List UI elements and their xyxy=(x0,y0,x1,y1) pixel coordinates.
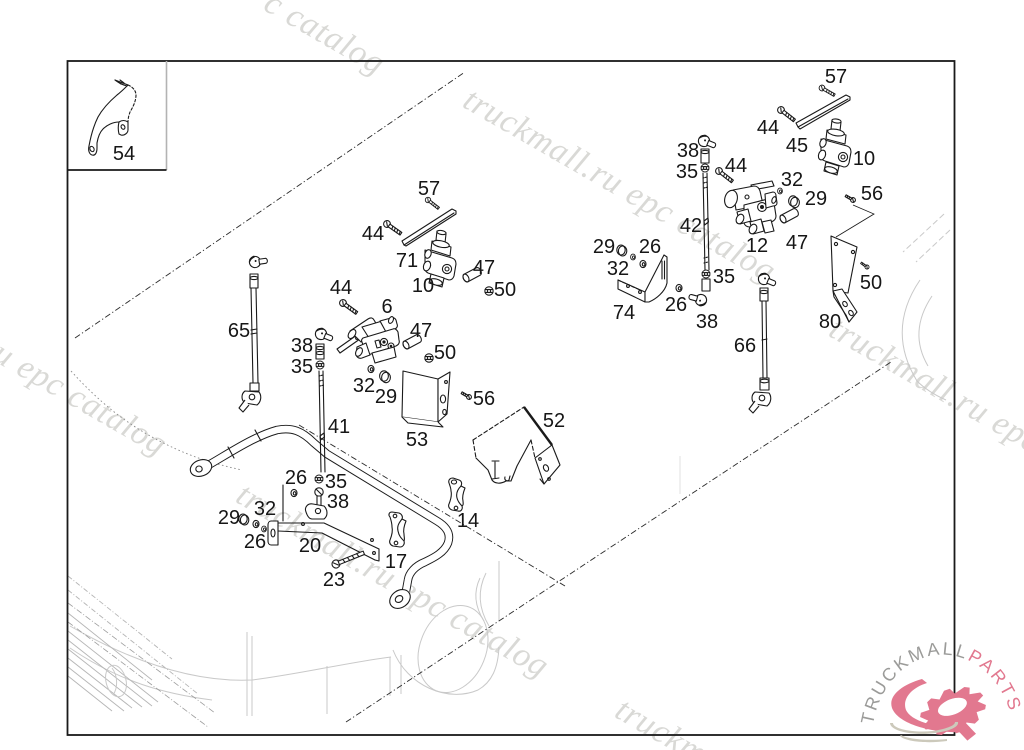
svg-text:26: 26 xyxy=(285,467,307,489)
svg-text:50: 50 xyxy=(494,279,516,301)
svg-text:10: 10 xyxy=(412,275,434,297)
svg-text:14: 14 xyxy=(457,510,479,532)
svg-text:32: 32 xyxy=(781,169,803,191)
svg-text:38: 38 xyxy=(677,140,699,162)
svg-text:74: 74 xyxy=(613,302,635,324)
svg-text:50: 50 xyxy=(860,272,882,294)
svg-text:26: 26 xyxy=(244,531,266,553)
svg-text:56: 56 xyxy=(861,183,883,205)
svg-text:65: 65 xyxy=(228,320,250,342)
svg-text:29: 29 xyxy=(593,236,615,258)
svg-text:57: 57 xyxy=(418,178,440,200)
svg-text:66: 66 xyxy=(734,335,756,357)
svg-text:50: 50 xyxy=(434,342,456,364)
svg-text:44: 44 xyxy=(757,117,779,139)
svg-text:42: 42 xyxy=(680,215,702,237)
svg-text:52: 52 xyxy=(543,410,565,432)
svg-text:35: 35 xyxy=(676,161,698,183)
svg-text:29: 29 xyxy=(218,507,240,529)
svg-text:53: 53 xyxy=(406,429,428,451)
svg-text:38: 38 xyxy=(696,311,718,333)
svg-text:38: 38 xyxy=(291,335,313,357)
svg-text:32: 32 xyxy=(353,375,375,397)
svg-text:29: 29 xyxy=(375,386,397,408)
svg-text:35: 35 xyxy=(325,471,347,493)
svg-text:38: 38 xyxy=(327,491,349,513)
svg-text:41: 41 xyxy=(328,416,350,438)
svg-text:26: 26 xyxy=(665,294,687,316)
svg-text:12: 12 xyxy=(746,235,768,257)
svg-text:47: 47 xyxy=(410,320,432,342)
svg-text:44: 44 xyxy=(725,155,747,177)
svg-text:10: 10 xyxy=(853,148,875,170)
svg-text:35: 35 xyxy=(713,266,735,288)
svg-text:26: 26 xyxy=(639,236,661,258)
svg-text:32: 32 xyxy=(254,498,276,520)
svg-text:47: 47 xyxy=(786,232,808,254)
svg-text:57: 57 xyxy=(825,66,847,88)
svg-text:56: 56 xyxy=(473,388,495,410)
svg-text:35: 35 xyxy=(291,356,313,378)
svg-text:47: 47 xyxy=(473,257,495,279)
svg-text:23: 23 xyxy=(323,569,345,591)
svg-text:45: 45 xyxy=(786,135,808,157)
svg-text:20: 20 xyxy=(299,535,321,557)
svg-text:54: 54 xyxy=(113,143,135,165)
svg-text:80: 80 xyxy=(819,311,841,333)
svg-text:29: 29 xyxy=(805,188,827,210)
svg-text:6: 6 xyxy=(381,296,392,318)
svg-text:44: 44 xyxy=(330,277,352,299)
svg-text:44: 44 xyxy=(362,223,384,245)
svg-text:32: 32 xyxy=(607,258,629,280)
svg-text:71: 71 xyxy=(396,250,418,272)
svg-text:17: 17 xyxy=(385,551,407,573)
